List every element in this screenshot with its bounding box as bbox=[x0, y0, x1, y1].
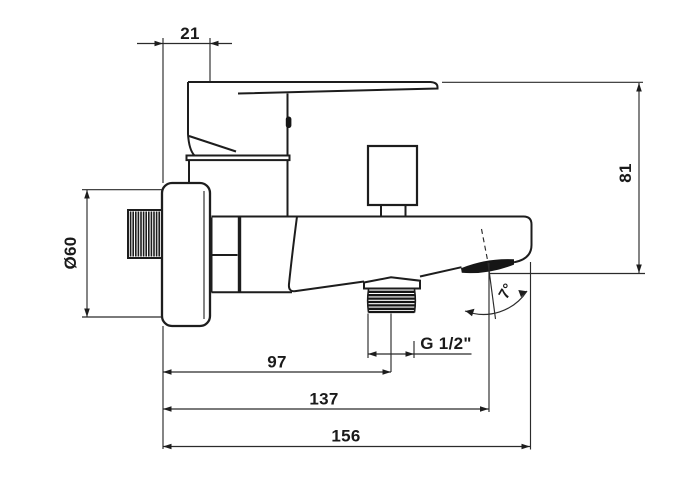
wall-nipple-thread bbox=[128, 210, 162, 258]
aerator bbox=[461, 259, 514, 273]
diverter-knob bbox=[368, 146, 417, 217]
dim-label-97: 97 bbox=[267, 353, 287, 372]
dim-label-diameter: Ø60 bbox=[61, 236, 80, 269]
hex-nut bbox=[212, 218, 293, 293]
dim-label-156: 156 bbox=[331, 427, 360, 446]
dimension-97: 97 bbox=[163, 353, 391, 375]
dimension-thread-g12: G 1/2" bbox=[368, 314, 472, 373]
dim-label-21: 21 bbox=[180, 24, 200, 43]
dimension-81: 81 bbox=[442, 82, 645, 273]
dimension-156: 156 bbox=[163, 262, 531, 450]
faucet-outline bbox=[128, 82, 532, 326]
shower-outlet bbox=[364, 277, 420, 312]
lever-handle bbox=[188, 82, 438, 134]
dim-label-thread: G 1/2" bbox=[420, 334, 471, 353]
dim-label-137: 137 bbox=[309, 390, 338, 409]
collar-ring bbox=[187, 156, 290, 161]
dim-label-81: 81 bbox=[616, 163, 635, 183]
handle-pivot-pin bbox=[286, 117, 292, 129]
dim-label-angle: 7° bbox=[495, 281, 517, 302]
body-neck bbox=[187, 94, 292, 217]
technical-drawing-canvas: 21 81 Ø60 G 1/2" 97 bbox=[0, 0, 691, 501]
faucet-technical-drawing: 21 81 Ø60 G 1/2" 97 bbox=[0, 0, 691, 501]
wall-plate bbox=[162, 183, 210, 326]
outlet-thread bbox=[369, 292, 415, 312]
